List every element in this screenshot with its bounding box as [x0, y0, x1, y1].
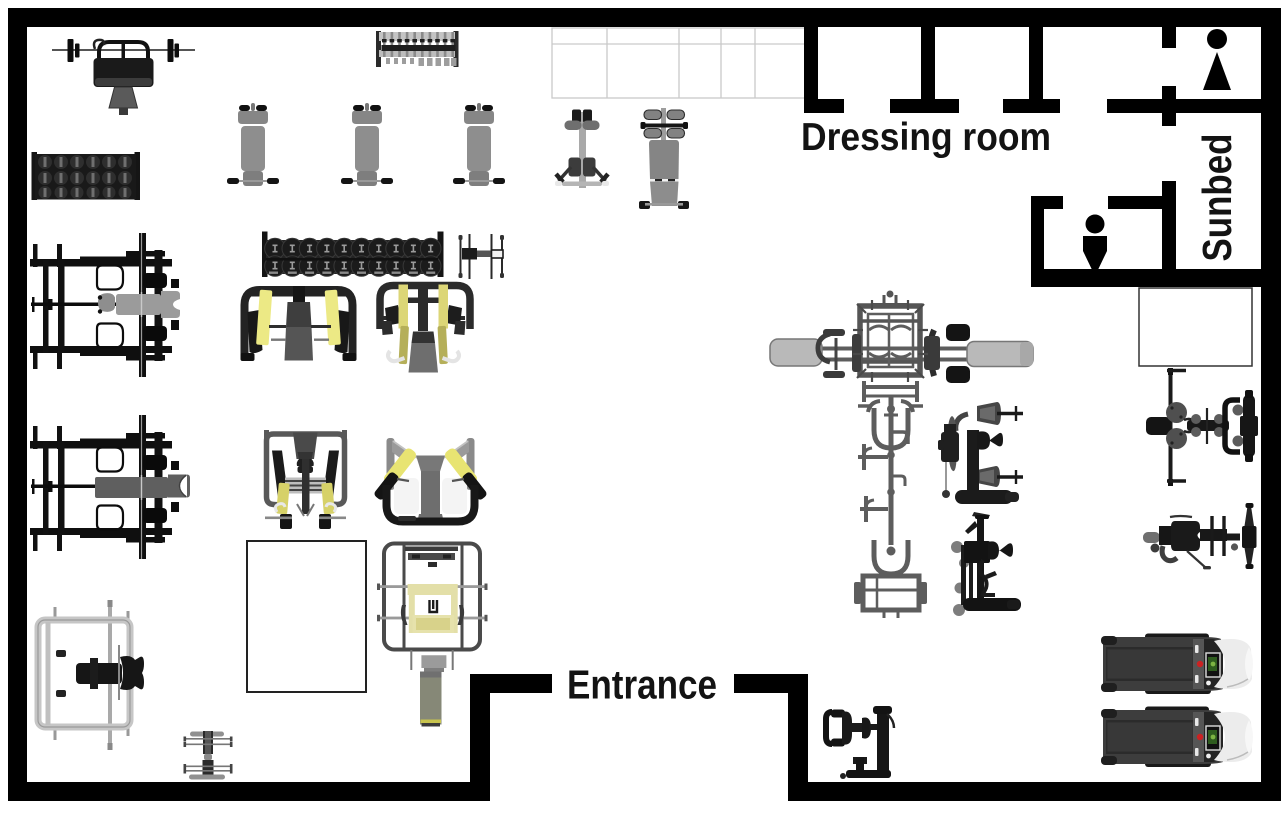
svg-text:Entrance: Entrance: [567, 662, 717, 708]
svg-text:Sunbed: Sunbed: [1194, 134, 1240, 262]
svg-text:Dressing room: Dressing room: [801, 116, 1051, 159]
